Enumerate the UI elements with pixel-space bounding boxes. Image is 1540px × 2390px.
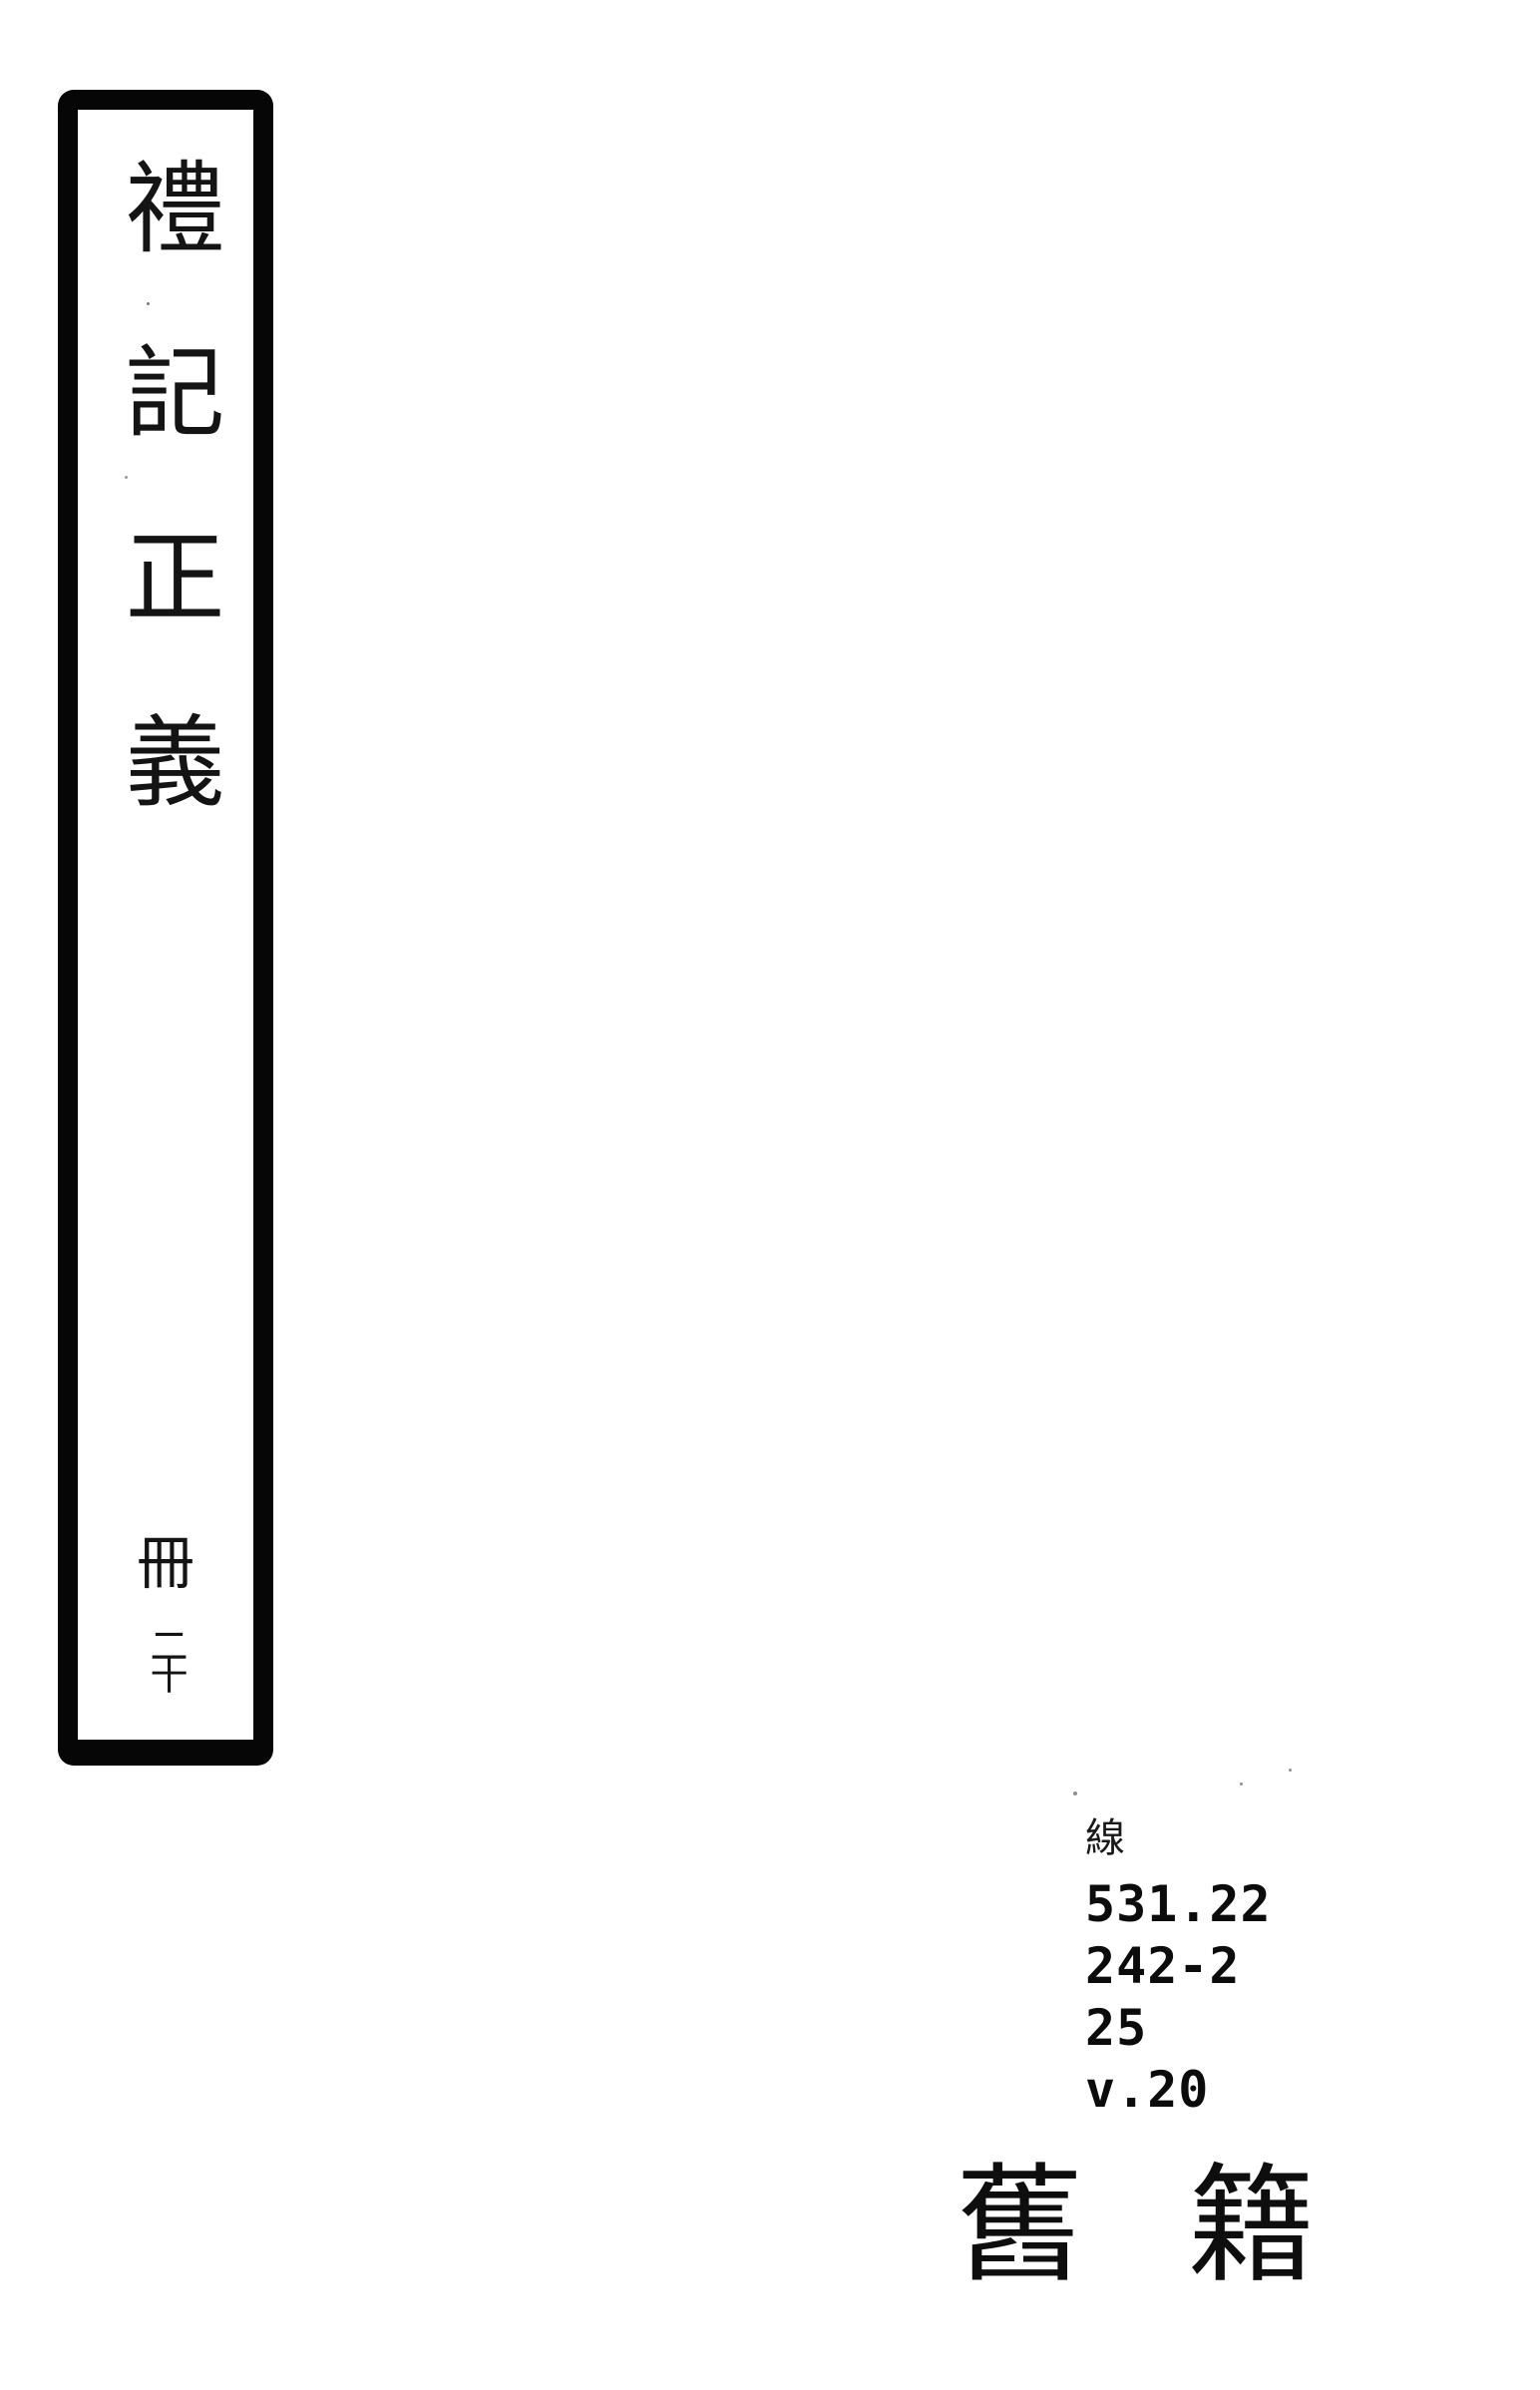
scanned-book-cover: 禮記正義 冊 二十 線 531.22 242-2 25 v.20 舊 籍	[0, 0, 1540, 2390]
collection-stamp-char-1: 舊	[956, 2163, 1083, 2290]
collection-stamp-char-2: 籍	[1188, 2163, 1316, 2290]
scan-speck	[125, 476, 128, 479]
volume-label: 冊 二十	[78, 1534, 253, 1686]
call-number-block: 線 531.22 242-2 25 v.20	[1085, 1815, 1272, 2121]
call-number-line-1: 531.22	[1085, 1873, 1272, 1935]
volume-marker-char: 冊	[137, 1534, 194, 1592]
call-number-line-2: 242-2	[1085, 1935, 1272, 1997]
call-number-line-4: v.20	[1085, 2059, 1272, 2121]
volume-number: 二十	[147, 1626, 185, 1686]
call-number-category-char: 線	[1085, 1815, 1272, 1861]
scan-speck	[1073, 1792, 1077, 1795]
scan-speck	[1289, 1769, 1292, 1772]
scan-speck	[1240, 1783, 1243, 1786]
scan-speck	[147, 302, 150, 305]
collection-stamp: 舊 籍	[956, 2163, 1316, 2290]
book-title-vertical: 禮記正義	[116, 156, 215, 894]
title-slip-border: 禮記正義 冊 二十	[58, 90, 273, 1766]
call-number-line-3: 25	[1085, 1997, 1272, 2059]
